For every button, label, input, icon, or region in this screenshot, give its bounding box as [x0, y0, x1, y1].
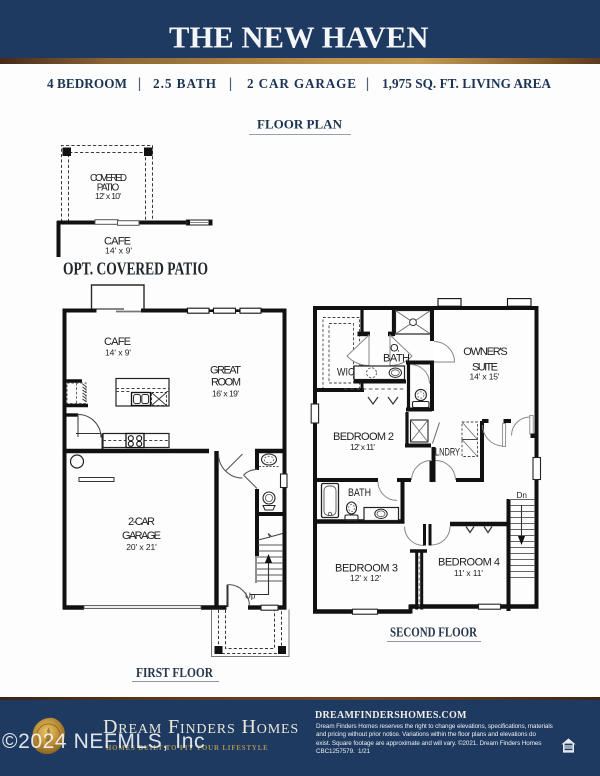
svg-text:Dn: Dn [517, 491, 528, 500]
svg-text:11' x 11': 11' x 11' [454, 568, 483, 578]
svg-text:14' x 15': 14' x 15' [470, 372, 500, 382]
svg-text:BATH: BATH [348, 487, 371, 499]
svg-text:BATH: BATH [383, 353, 410, 365]
svg-text:12' x 10': 12' x 10' [95, 191, 121, 201]
svg-text:ROOM: ROOM [211, 377, 241, 389]
svg-text:FLOOR PLAN: FLOOR PLAN [257, 117, 342, 131]
svg-text:CAFE: CAFE [104, 336, 131, 348]
svg-text:FIRST FLOOR: FIRST FLOOR [136, 665, 213, 680]
svg-text:1,975 SQ. FT. LIVING AREA: 1,975 SQ. FT. LIVING AREA [382, 76, 551, 91]
svg-text:2.5 BATH: 2.5 BATH [153, 76, 217, 91]
svg-text:4 BEDROOM: 4 BEDROOM [47, 76, 128, 91]
svg-text:SECOND FLOOR: SECOND FLOOR [390, 625, 477, 640]
svg-text:12' x 11': 12' x 11' [350, 442, 375, 452]
svg-text:2 CAR GARAGE: 2 CAR GARAGE [247, 76, 356, 91]
svg-text:BEDROOM 4: BEDROOM 4 [438, 557, 500, 569]
svg-text:12' x 12': 12' x 12' [350, 573, 381, 583]
svg-text:OPT. COVERED PATIO: OPT. COVERED PATIO [63, 259, 208, 279]
svg-text:GREAT: GREAT [210, 365, 241, 377]
svg-text:GARAGE: GARAGE [122, 530, 161, 542]
svg-text:14' x 9': 14' x 9' [105, 246, 132, 256]
svg-text:WIC: WIC [337, 367, 355, 379]
svg-text:THE NEW HAVEN: THE NEW HAVEN [169, 20, 429, 55]
svg-text:OWNER'S: OWNER'S [463, 346, 508, 358]
svg-text:2-CAR: 2-CAR [128, 516, 155, 528]
svg-text:LNDRY: LNDRY [435, 447, 460, 459]
svg-text:20' x 21': 20' x 21' [126, 542, 157, 552]
svg-text:16' x 19': 16' x 19' [212, 389, 239, 399]
svg-text:14' x 9': 14' x 9' [105, 348, 131, 358]
